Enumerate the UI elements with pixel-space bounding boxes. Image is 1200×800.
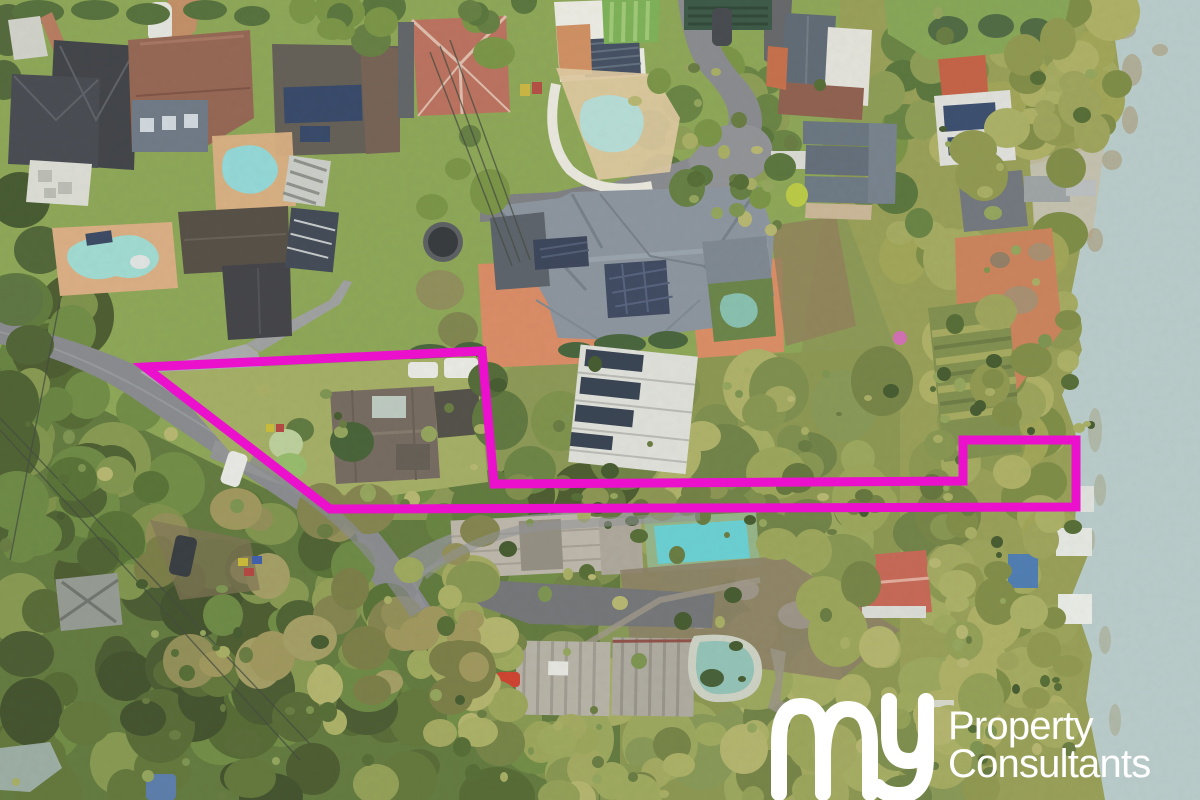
svg-text:Consultants: Consultants: [948, 742, 1150, 786]
